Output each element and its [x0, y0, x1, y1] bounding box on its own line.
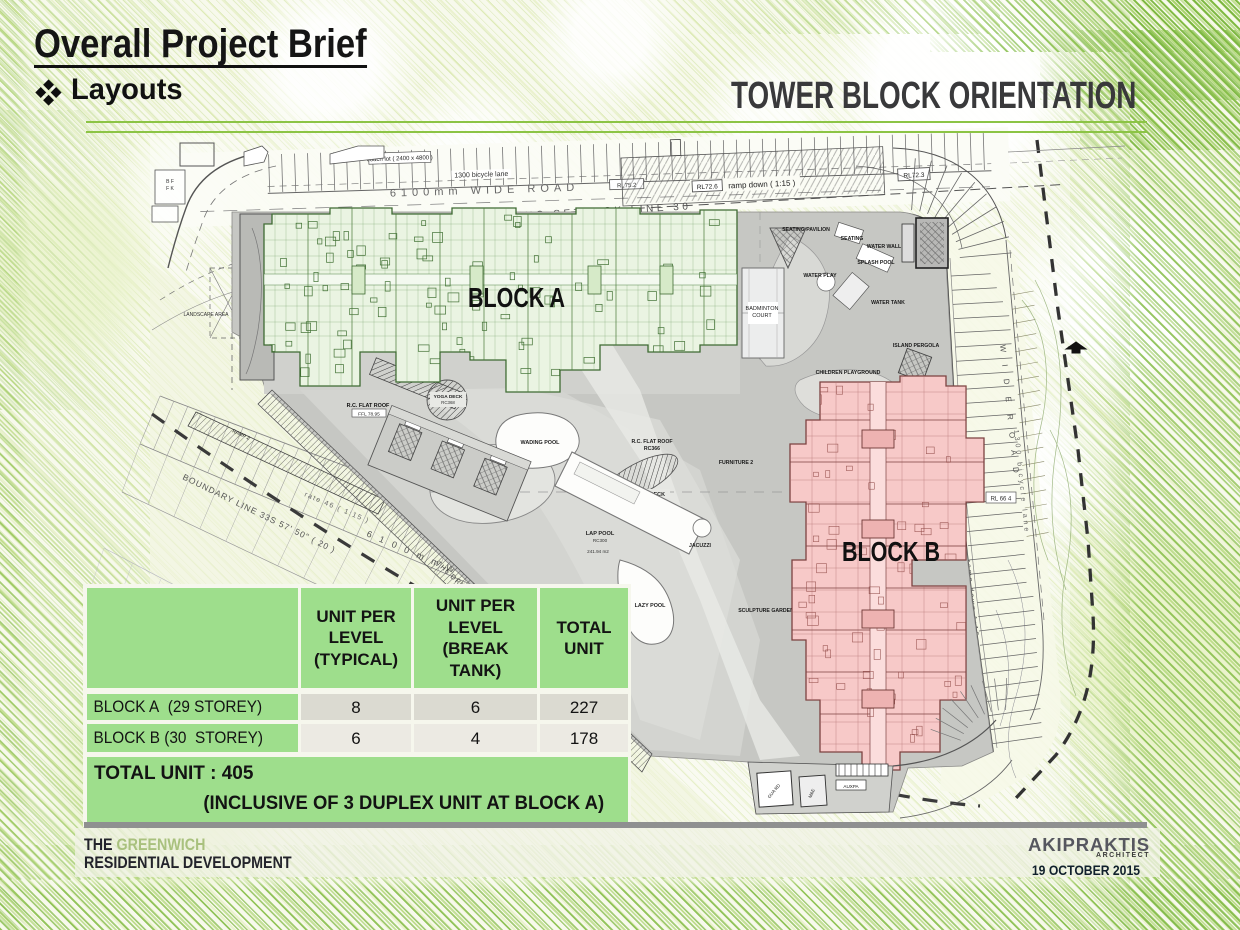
svg-text:SEATING: SEATING: [841, 236, 864, 242]
svg-text:WADING POOL: WADING POOL: [521, 440, 561, 446]
svg-text:RC368: RC368: [441, 400, 455, 405]
svg-text:JACUZZI: JACUZZI: [689, 543, 711, 549]
svg-text:SPLASH POOL: SPLASH POOL: [857, 260, 895, 266]
svg-text:F K: F K: [166, 186, 174, 192]
svg-text:R.C. FLAT ROOF: R.C. FLAT ROOF: [631, 439, 672, 445]
svg-text:SEATING PAVILION: SEATING PAVILION: [782, 227, 830, 233]
svg-text:BADMINTON: BADMINTON: [746, 306, 779, 312]
svg-text:BLOCK B: BLOCK B: [842, 536, 940, 567]
svg-text:FFL 78.95: FFL 78.95: [358, 412, 380, 418]
svg-text:241.94 m2: 241.94 m2: [587, 549, 609, 554]
svg-text:FURNITURE 2: FURNITURE 2: [719, 460, 753, 466]
svg-text:SCULPTURE GARDEN: SCULPTURE GARDEN: [738, 608, 794, 614]
svg-text:BLOCK A: BLOCK A: [468, 282, 565, 313]
svg-text:AUXPA: AUXPA: [843, 784, 859, 789]
svg-text:LAP POOL: LAP POOL: [586, 531, 615, 537]
svg-text:B F: B F: [166, 179, 174, 185]
svg-text:CHILDREN PLAYGROUND: CHILDREN PLAYGROUND: [816, 370, 881, 376]
svg-text:RC366: RC366: [644, 446, 660, 452]
svg-text:COURT: COURT: [752, 313, 772, 319]
svg-text:RL72.6: RL72.6: [697, 183, 719, 191]
svg-text:WATER TANK: WATER TANK: [871, 300, 905, 306]
svg-text:RL 66 4: RL 66 4: [991, 497, 1012, 503]
svg-text:RC300: RC300: [593, 538, 608, 543]
svg-text:WATER PLAY: WATER PLAY: [803, 273, 837, 279]
svg-text:WATER WALL: WATER WALL: [867, 244, 902, 250]
svg-text:R.C. FLAT ROOF: R.C. FLAT ROOF: [347, 403, 390, 409]
svg-text:LAZY POOL: LAZY POOL: [635, 603, 666, 609]
svg-text:ISLAND PERGOLA: ISLAND PERGOLA: [893, 343, 940, 349]
svg-text:LANDSCAPE AREA: LANDSCAPE AREA: [183, 312, 229, 318]
